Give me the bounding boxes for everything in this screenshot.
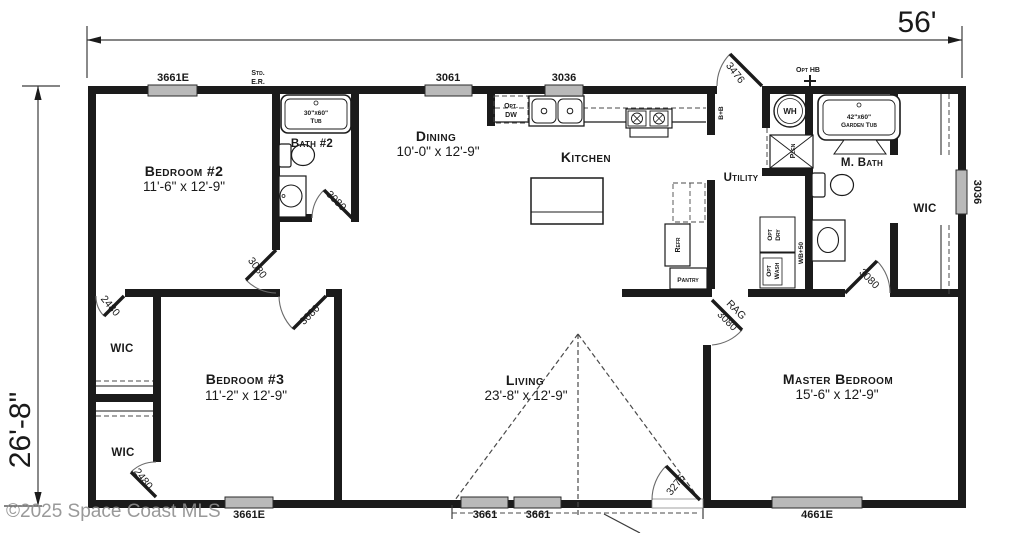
fixtures-layer: Opt. DW B+B [96,94,949,533]
room-dims-master: 15'-6" x 12'-9" [795,387,878,402]
door-bath2: 3080 [312,188,352,218]
door-label-bedroom3: 3080 [297,302,322,327]
watermark: ©2025 Space Coast MLS [6,501,221,522]
floor-plan-page: 56' 26'-8" [0,0,1024,533]
pantry-label: Pantry [677,277,699,284]
floor-plan-drawing: 56' 26'-8" [0,0,1024,533]
door-master: RAG 3080 [712,298,748,345]
opt-dryer-label: Opt [767,229,774,241]
pantry: Pantry [670,268,707,289]
window-bedroom2 [148,85,197,96]
range [626,109,672,137]
washer-dryer: Opt Dry Opt Wash WB+50 [760,217,805,288]
window-label-kitchen: 3036 [552,72,576,84]
window-label-dining: 3061 [436,72,460,84]
window-dining [425,85,472,96]
window-living-a [461,497,508,508]
room-label-living: Living [506,372,544,388]
kitchen-counter: Opt. DW B+B [494,96,725,137]
kitchen-sink [529,96,584,126]
window-label-wic-master: 3036 [971,180,983,204]
garden-tub-size: 42"x60" [847,114,871,121]
opt-dishwasher-label2: DW [505,112,517,119]
room-label-bedroom2: Bedroom #2 [145,163,224,179]
door-bedroom3: 3080 [279,296,326,329]
room-label-wic-bedroom2: WIC [110,343,133,355]
window-living-b [514,497,561,508]
opt-dishwasher-label: Opt. [504,103,518,110]
bath2-tub-label: Tub [310,118,322,125]
room-dims-living: 23'-8" x 12'-9" [484,388,567,403]
door-wic-bedroom3: 2480 [131,462,156,497]
garden-tub: 42"x60" Garden Tub [818,95,900,154]
room-label-utility: Utility [724,172,759,184]
refrigerator-label: Refr [675,237,682,252]
opt-washer-label: Opt [766,265,773,277]
bath2-sink [279,176,306,217]
door-mbath: 3080 [845,261,890,293]
window-label-living-b: 3661 [526,509,550,521]
width-dimension: 56' [897,6,936,39]
interior-walls [96,86,958,500]
garden-tub-label: Garden Tub [841,122,877,129]
bath2-tub-size: 30"x60" [304,110,328,117]
room-dims-dining: 10'-0" x 12'-9" [396,144,479,159]
room-dims-bedroom2: 11'-6" x 12'-9" [143,179,225,194]
door-label-wic-bedroom2: 2480 [98,293,122,319]
door-front: 3276 [652,466,703,508]
door-bedroom2: 3080 [245,250,276,293]
kitchen-island [531,178,603,224]
refrigerator: Refr [665,183,705,266]
door-label-wic-bedroom3: 2480 [131,466,155,492]
window-label-bedroom2: 3661E [157,72,189,84]
door-back: 3476 [717,54,762,86]
window-wic-master [956,170,967,214]
room-label-wic-bedroom3: WIC [111,447,134,459]
room-label-dining: Dining [416,128,456,144]
room-label-mbath: M. Bath [841,157,883,169]
hose-bib-marker: Opt HB [796,67,820,87]
door-wic-bedroom2: 2480 [96,293,124,319]
opt-washer-label2: Wash [774,262,781,279]
plenum: Plen [770,135,813,168]
hose-bib-label: Opt HB [796,67,820,74]
opt-dryer-label2: Dry [775,229,782,241]
room-label-bath2: Bath #2 [291,138,333,150]
washer-box-label: WB+50 [798,242,805,265]
window-bedroom3 [225,497,273,508]
window-kitchen [545,85,583,96]
base-backsplash-label: B+B [718,106,725,120]
room-label-kitchen: Kitchen [561,149,611,165]
egress-label-line1: Std. [251,70,264,77]
plenum-label: Plen [790,143,797,158]
height-dimension: 26'-8" [4,392,37,468]
window-label-bedroom3: 3661E [233,509,265,521]
window-label-living-a: 3661 [473,509,497,521]
door-label-back: 3476 [723,60,747,86]
room-label-bedroom3: Bedroom #3 [206,371,285,387]
room-label-wic-master: WIC [913,203,936,215]
bath2-tub: 30"x60" Tub [281,95,351,133]
window-label-master: 4661E [801,509,833,521]
room-dims-bedroom3: 11'-2" x 12'-9" [205,388,287,403]
mbath-toilet [812,173,854,197]
water-heater-label: WH [783,107,797,116]
room-label-master: Master Bedroom [783,371,893,387]
window-master [772,497,862,508]
mbath-sink [812,220,845,261]
egress-label-line2: E.R. [251,79,265,86]
